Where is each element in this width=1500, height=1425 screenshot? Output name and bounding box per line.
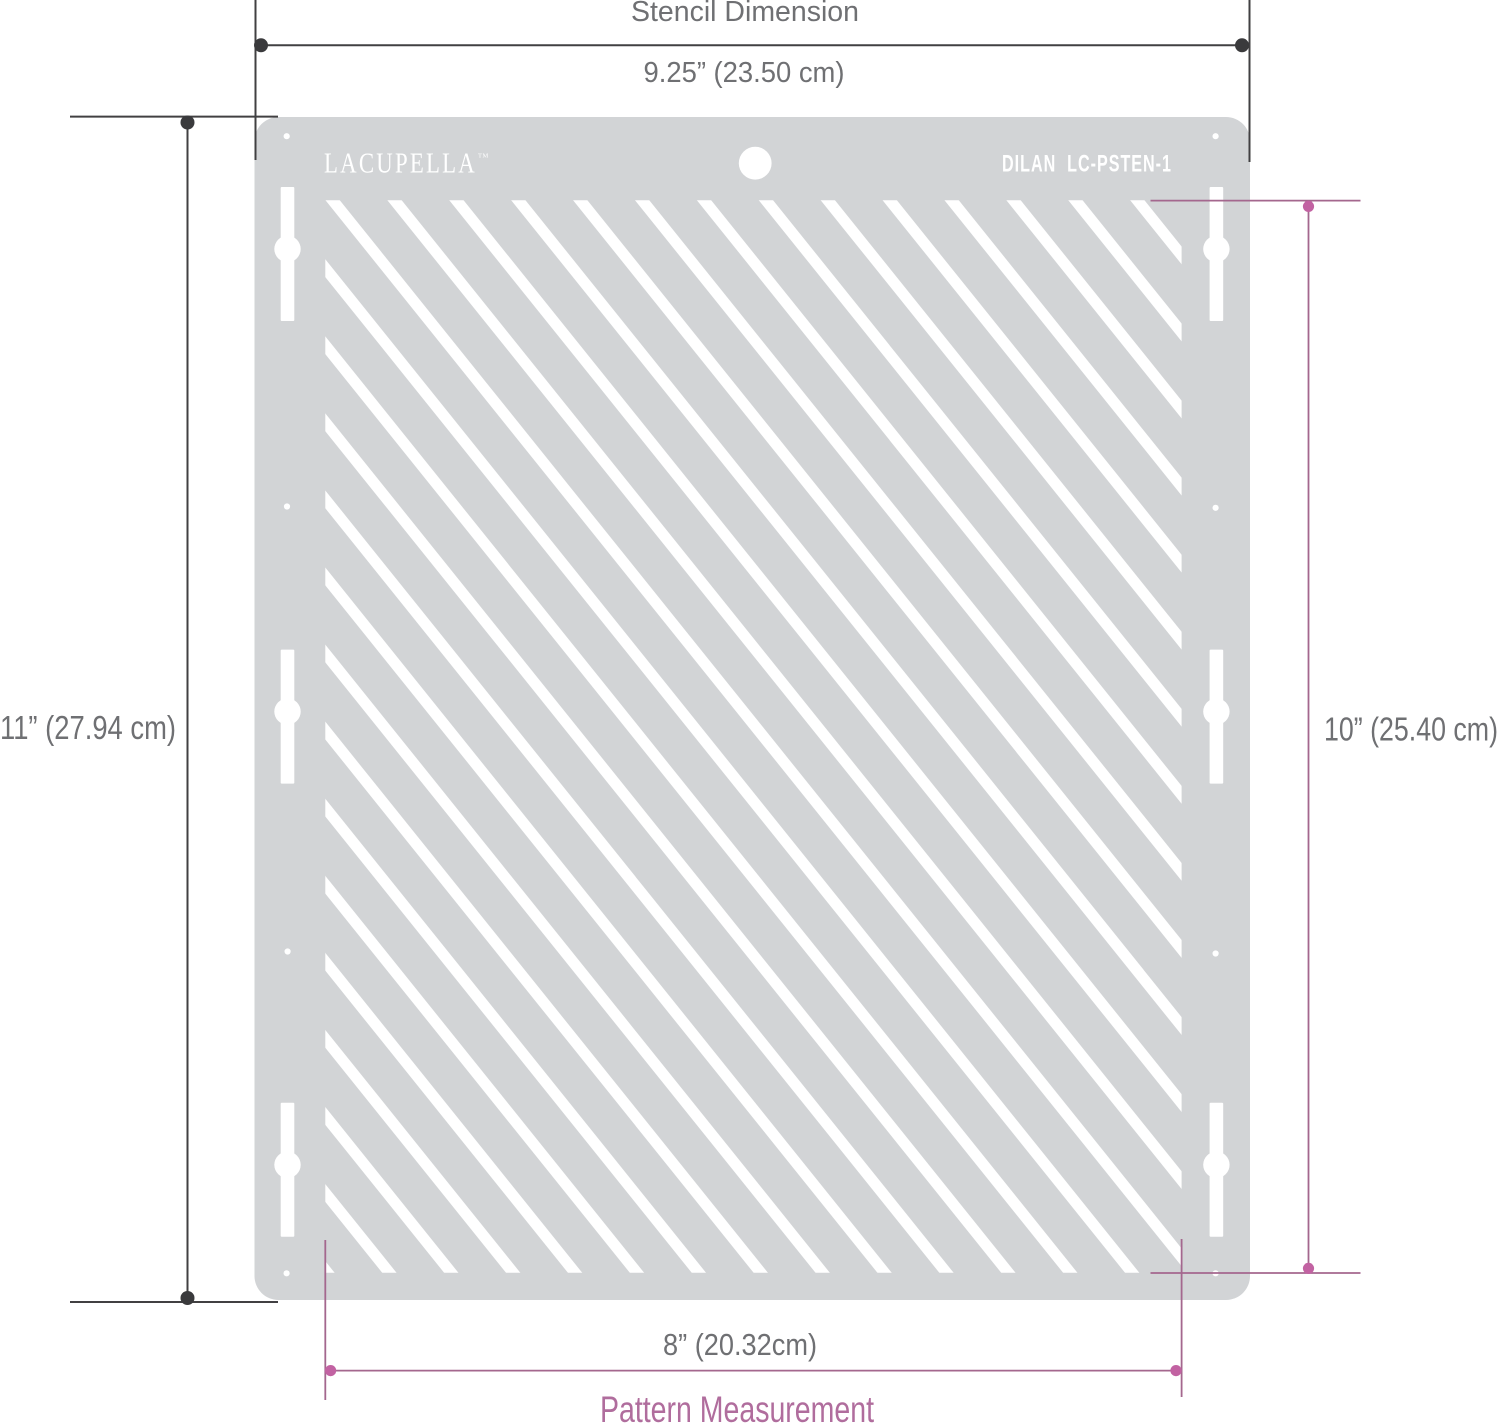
- svg-text:Stencil Dimension: Stencil Dimension: [631, 0, 859, 28]
- svg-text:10” (25.40 cm): 10” (25.40 cm): [1324, 711, 1498, 748]
- svg-text:9.25” (23.50 cm): 9.25” (23.50 cm): [644, 57, 845, 89]
- svg-text:DILAN LC-PSTEN-1: DILAN LC-PSTEN-1: [1002, 151, 1172, 178]
- svg-text:8” (20.32cm): 8” (20.32cm): [663, 1327, 817, 1362]
- svg-text:LACUPELLA: LACUPELLA: [324, 149, 477, 180]
- svg-text:11” (27.94 cm): 11” (27.94 cm): [0, 709, 176, 746]
- svg-text:Pattern Measurement: Pattern Measurement: [600, 1389, 875, 1425]
- svg-text:TM: TM: [478, 153, 489, 160]
